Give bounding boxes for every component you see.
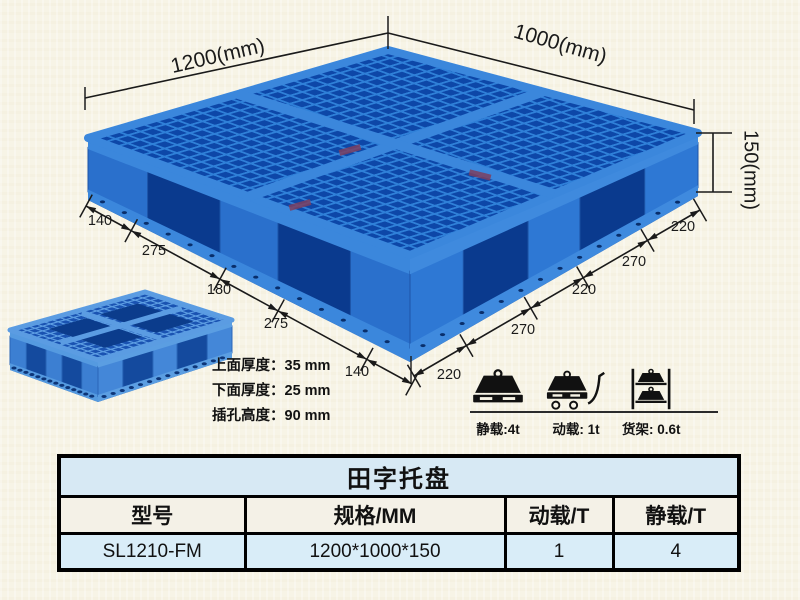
dynamic-load-caption: 动载: 1t (552, 418, 599, 438)
dim-segment-label: 140 (88, 213, 112, 229)
pallet-spec-sheet: 1402751802751402202702202702201200(mm)10… (0, 0, 800, 600)
thickness-specs: 上面厚度：35 mm 下面厚度：25 mm 插孔高度：90 mm (212, 354, 330, 429)
dim-width-label: 1200(mm) (169, 34, 267, 78)
dim-segment-label: 270 (622, 254, 646, 270)
table-data-row: SL1210-FM 1200*1000*150 1 4 (59, 534, 739, 571)
cell-spec: 1200*1000*150 (245, 534, 505, 571)
top-thickness-spec: 上面厚度：35 mm (212, 354, 330, 379)
static-load-figure: 静载:4t (466, 368, 530, 438)
table-title: 田字托盘 (59, 456, 739, 497)
load-capacity-block: 静载:4t 动载: 1t (466, 368, 728, 438)
table-title-row: 田字托盘 (59, 456, 739, 497)
cell-dynamic-load: 1 (505, 534, 613, 571)
secondary-pallet-illustration (10, 292, 232, 402)
col-header-static-load: 静载/T (613, 497, 739, 534)
rack-load-icon (624, 368, 678, 410)
dim-segment-label: 140 (345, 364, 369, 380)
ground-line (470, 411, 718, 413)
dim-segment-label: 220 (671, 219, 695, 235)
fork-opening-height-spec: 插孔高度：90 mm (212, 404, 330, 429)
cell-model: SL1210-FM (59, 534, 245, 571)
dim-segment-label: 275 (142, 243, 166, 259)
dim-depth-label: 1000(mm) (511, 20, 609, 68)
bottom-thickness-spec: 下面厚度：25 mm (212, 379, 330, 404)
rack-load-caption: 货架: 0.6t (622, 418, 681, 438)
dim-segment-label: 220 (572, 282, 596, 298)
cell-static-load: 4 (613, 534, 739, 571)
static-load-icon (466, 368, 530, 410)
dynamic-load-icon (538, 368, 614, 410)
load-capacity-icons: 静载:4t 动载: 1t (466, 368, 728, 438)
dim-segment-label: 270 (511, 322, 535, 338)
dim-segment-label: 180 (207, 282, 231, 298)
dynamic-load-figure: 动载: 1t (538, 368, 614, 438)
table-header-row: 型号 规格/MM 动载/T 静载/T (59, 497, 739, 534)
static-load-caption: 静载:4t (476, 418, 520, 438)
dim-height-label: 150(mm) (740, 130, 762, 210)
spec-table: 田字托盘 型号 规格/MM 动载/T 静载/T SL1210-FM 1200*1… (57, 454, 741, 572)
dim-segment-label: 220 (437, 367, 461, 383)
col-header-dynamic-load: 动载/T (505, 497, 613, 534)
dim-segment-label: 275 (264, 316, 288, 332)
rack-load-figure: 货架: 0.6t (622, 368, 681, 438)
col-header-spec: 规格/MM (245, 497, 505, 534)
col-header-model: 型号 (59, 497, 245, 534)
